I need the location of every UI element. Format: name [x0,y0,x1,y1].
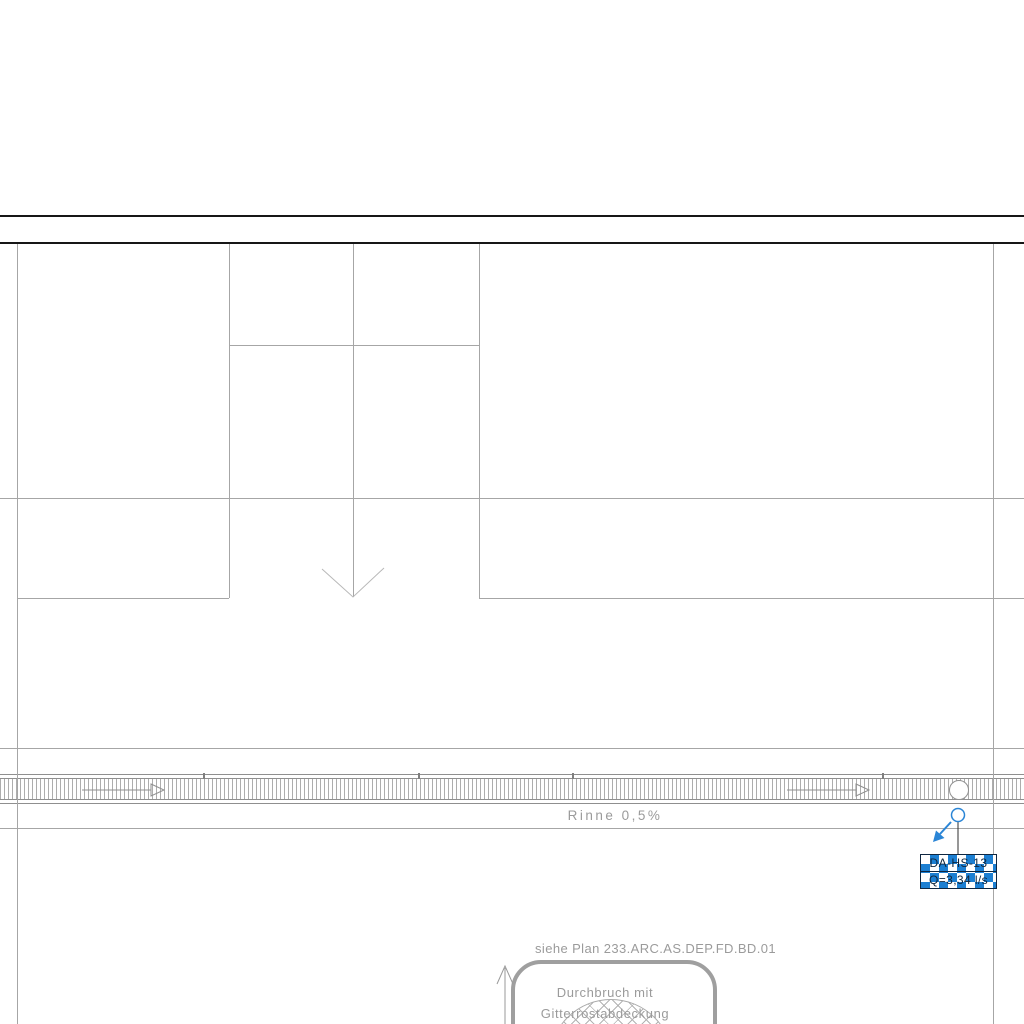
partition-wall-line [479,598,1024,599]
channel-offset-line [0,748,1024,749]
plan-reference-note: siehe Plan 233.ARC.AS.DEP.FD.BD.01 [535,941,776,956]
floor-joint-line [0,498,1024,499]
opening-note: Durchbruch mit Gitterrostabdeckung [520,982,690,1024]
leader-grip-circle[interactable] [952,809,965,822]
partition-wall-line [17,598,229,599]
opening-note-line2: Gitterrostabdeckung [520,1003,690,1024]
wall-lines-layer [0,0,1024,1024]
floor-plan-canvas: Rinne 0,5% siehe Plan 233.ARC.AS.DEP.FD.… [0,0,1024,1024]
opening-note-line1: Durchbruch mit [520,982,690,1003]
drain-tag-id[interactable]: DA-HS-13 [921,855,996,871]
drain-tag-selected[interactable]: DA-HS-13 Q=3,34 l/s [920,854,997,889]
channel-offset-line [0,828,1024,829]
wall-line-right [993,244,994,1024]
partition-wall-line [479,244,480,598]
wall-line-top-outer [0,215,1024,217]
partition-wall-line [353,244,354,597]
wall-line-top-inner [0,242,1024,244]
rinne-slope-label: Rinne 0,5% [525,808,705,823]
wall-line-left [17,244,18,1024]
partition-wall-line [229,345,479,346]
drain-tag-flow[interactable]: Q=3,34 l/s [921,871,996,888]
partition-wall-line [229,244,230,598]
